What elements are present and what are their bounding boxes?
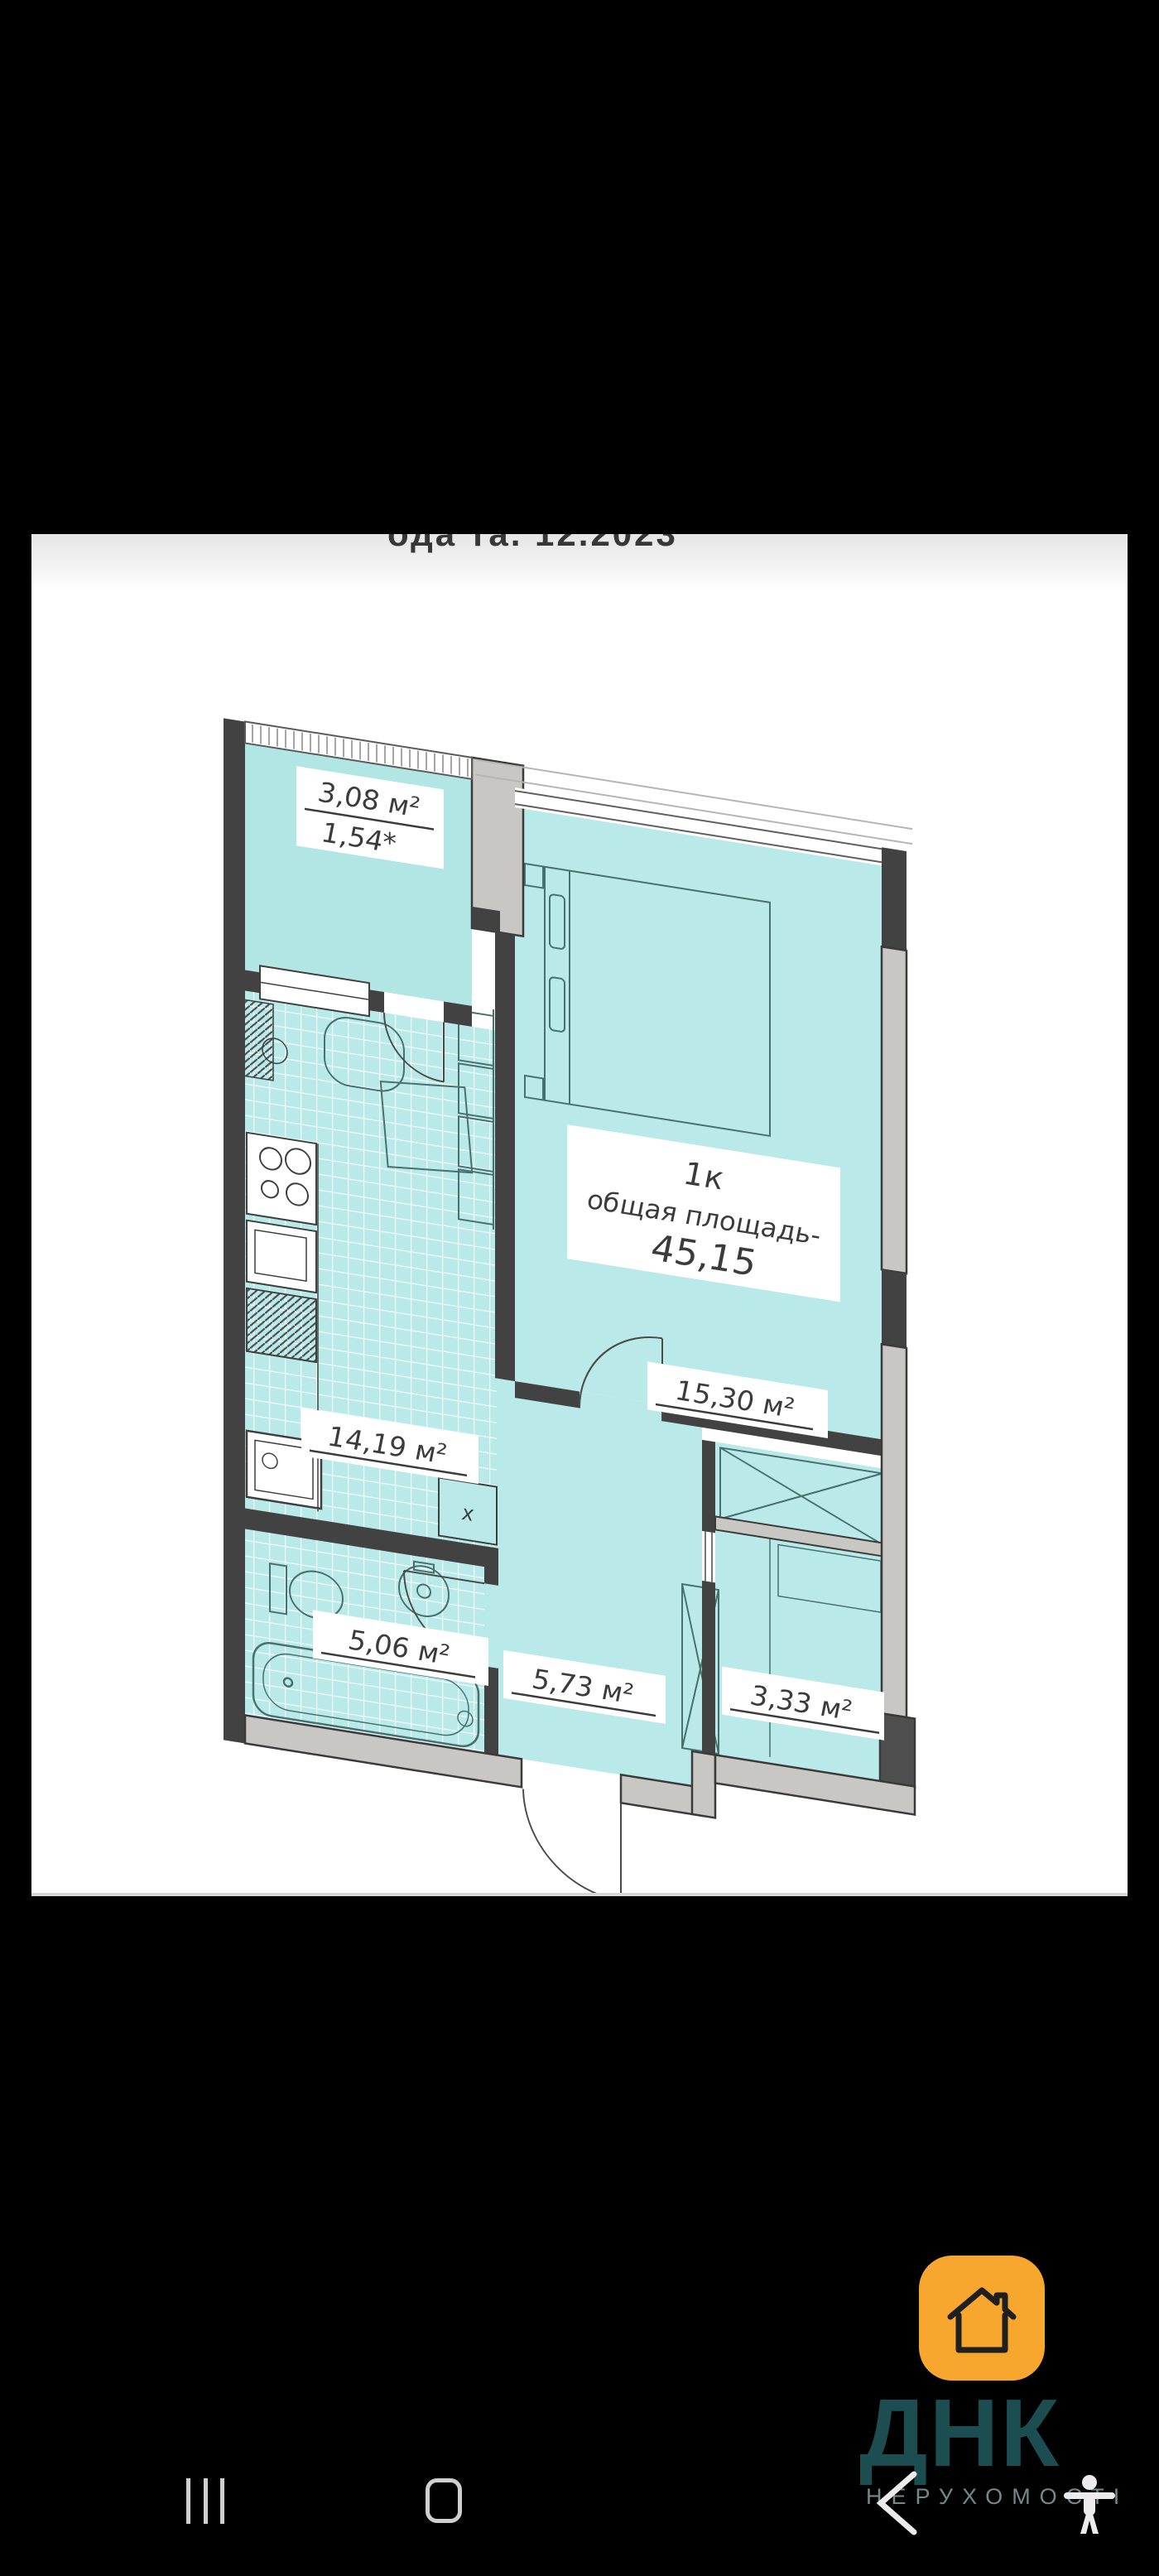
photo-edge-line [31, 1893, 1128, 1896]
back-chevron-icon [881, 2474, 914, 2532]
fridge [247, 1288, 316, 1362]
floor-plan: х [31, 534, 1128, 1896]
room-hallway [484, 1376, 702, 1788]
floorplan-photo: ода та. 12.2023 [31, 534, 1128, 1896]
kitchen-sink-cabinet [247, 1221, 316, 1293]
accessibility-icon [1064, 2475, 1115, 2534]
house-icon [942, 2280, 1022, 2357]
nav-home-button[interactable] [426, 2478, 462, 2523]
recents-icon [186, 2478, 190, 2524]
nav-back-button[interactable] [871, 2471, 924, 2535]
brand-logo: ДНК [859, 2385, 1060, 2481]
nav-recents-button[interactable] [186, 2478, 224, 2524]
entrance-door [523, 1788, 621, 1896]
recents-icon [204, 2478, 208, 2524]
recents-icon [220, 2478, 224, 2524]
accessibility-button[interactable] [1062, 2474, 1117, 2535]
stove [247, 1133, 316, 1225]
summary-rooms-type: 1к [684, 1156, 723, 1198]
home-app-button[interactable] [919, 2256, 1045, 2381]
kitchen-cabinet-mark: х [461, 1500, 474, 1526]
